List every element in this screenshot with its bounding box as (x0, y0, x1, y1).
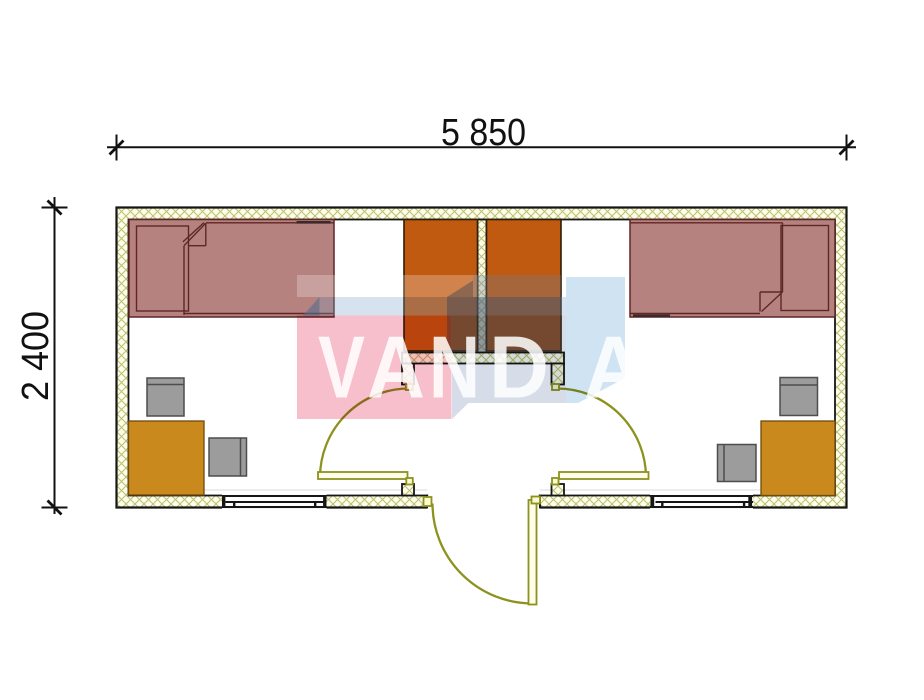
svg-text:5 850: 5 850 (441, 112, 526, 154)
svg-text:2 400: 2 400 (15, 311, 57, 401)
svg-text:D: D (489, 318, 549, 417)
svg-text:V: V (318, 318, 365, 417)
svg-text:A: A (367, 318, 425, 417)
svg-text:N: N (429, 318, 480, 417)
svg-text:A: A (584, 318, 643, 417)
